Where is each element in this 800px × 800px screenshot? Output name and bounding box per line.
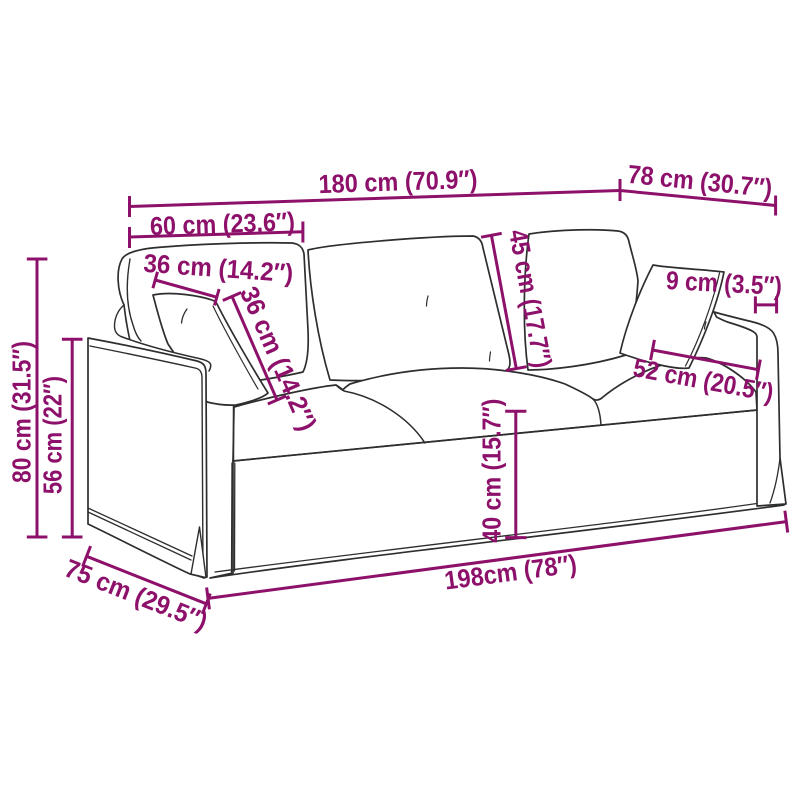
svg-text:56 cm (22″): 56 cm (22″) [38,376,68,494]
svg-text:80 cm (31.5″): 80 cm (31.5″) [7,341,37,483]
svg-text:60 cm (23.6″): 60 cm (23.6″) [149,206,295,241]
svg-text:9 cm (3.5″): 9 cm (3.5″) [665,265,782,301]
svg-text:40 cm (15.7″): 40 cm (15.7″) [477,399,507,543]
svg-text:180 cm (70.9″): 180 cm (70.9″) [318,164,478,199]
